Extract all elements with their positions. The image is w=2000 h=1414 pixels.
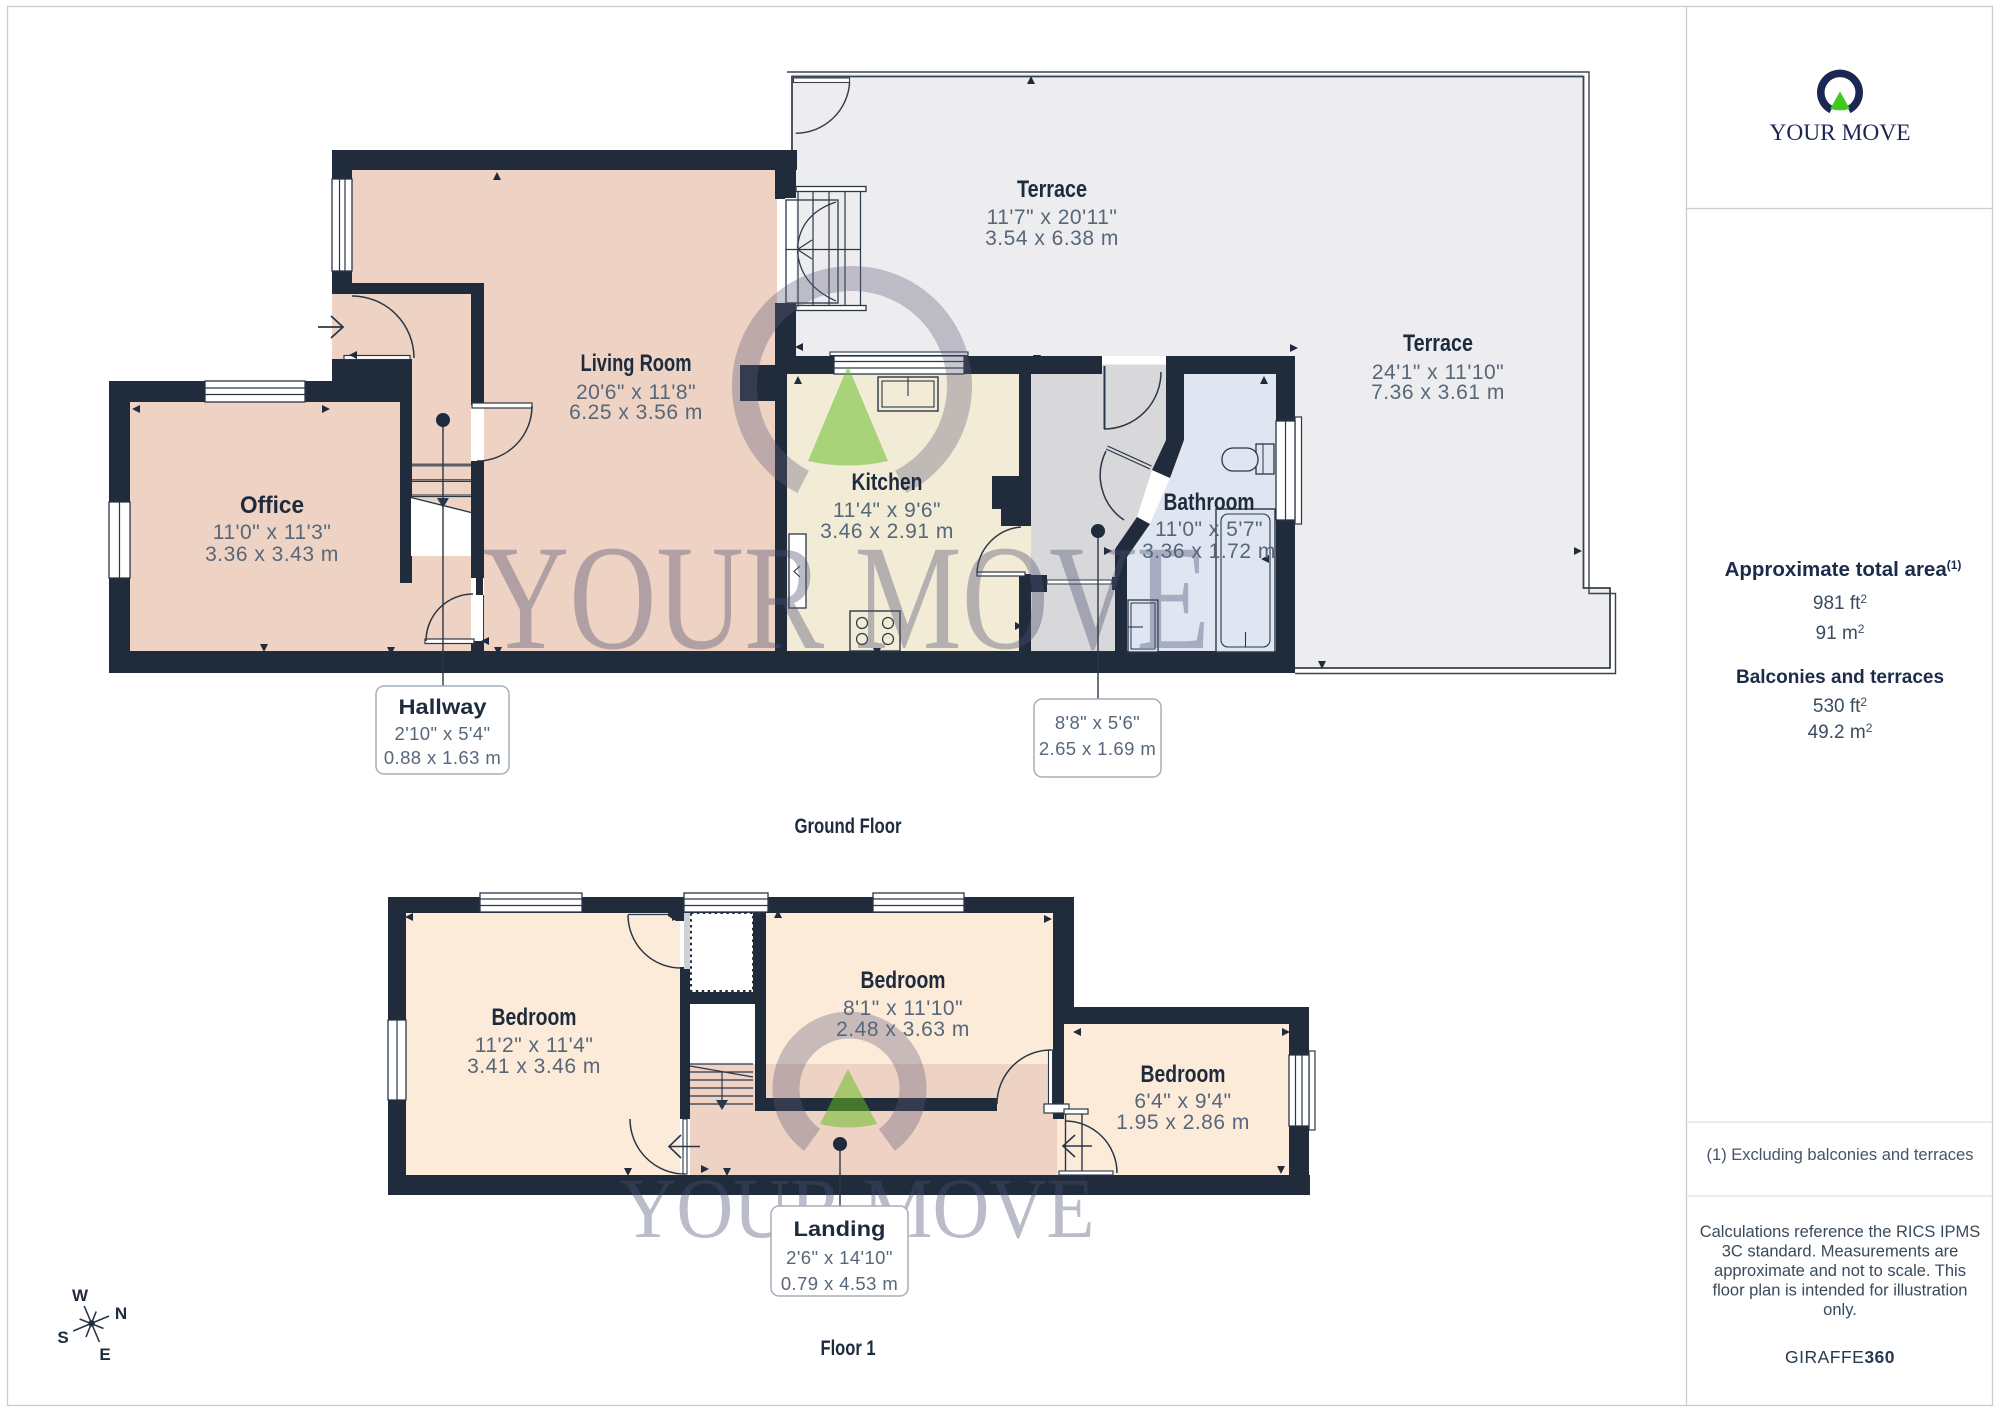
svg-text:49.2 m2: 49.2 m2 (1808, 721, 1873, 743)
svg-text:2.65 x 1.69 m: 2.65 x 1.69 m (1039, 738, 1156, 759)
svg-text:2'6" x 14'10": 2'6" x 14'10" (786, 1247, 893, 1268)
svg-text:1.95 x 2.86 m: 1.95 x 2.86 m (1116, 1111, 1250, 1134)
svg-text:Bathroom: Bathroom (1164, 489, 1255, 516)
svg-text:3.36 x 3.43 m: 3.36 x 3.43 m (205, 543, 339, 566)
svg-text:Bedroom: Bedroom (1141, 1061, 1226, 1088)
svg-text:Floor 1: Floor 1 (821, 1337, 876, 1360)
svg-text:(1) Excluding balconies and te: (1) Excluding balconies and terraces (1707, 1146, 1974, 1164)
svg-text:Landing: Landing (794, 1218, 886, 1241)
svg-text:7.36 x 3.61 m: 7.36 x 3.61 m (1371, 381, 1505, 404)
svg-text:S: S (57, 1328, 68, 1347)
svg-text:11'2" x 11'4": 11'2" x 11'4" (475, 1034, 594, 1057)
svg-text:Calculations reference the RIC: Calculations reference the RICS IPMS (1700, 1223, 1981, 1241)
svg-text:Kitchen: Kitchen (852, 469, 923, 496)
svg-text:0.79 x 4.53 m: 0.79 x 4.53 m (781, 1273, 898, 1294)
svg-text:2.48 x 3.63 m: 2.48 x 3.63 m (836, 1018, 970, 1041)
svg-text:530 ft2: 530 ft2 (1813, 695, 1868, 717)
svg-text:6.25 x 3.56 m: 6.25 x 3.56 m (569, 401, 703, 424)
svg-text:Living Room: Living Room (581, 350, 692, 377)
svg-text:Terrace: Terrace (1403, 330, 1473, 357)
svg-text:Terrace: Terrace (1017, 176, 1087, 203)
svg-text:3C standard. Measurements are: 3C standard. Measurements are (1722, 1243, 1959, 1261)
svg-text:8'8" x 5'6": 8'8" x 5'6" (1055, 712, 1140, 733)
svg-text:3.46 x 2.91 m: 3.46 x 2.91 m (820, 520, 954, 543)
svg-text:8'1" x 11'10": 8'1" x 11'10" (843, 997, 963, 1020)
svg-text:Bedroom: Bedroom (492, 1004, 577, 1031)
svg-text:0.88 x 1.63 m: 0.88 x 1.63 m (384, 747, 501, 768)
svg-text:E: E (99, 1345, 110, 1364)
svg-text:Ground Floor: Ground Floor (795, 815, 902, 838)
svg-text:11'0" x 5'7": 11'0" x 5'7" (1155, 518, 1263, 541)
svg-text:floor plan is intended for ill: floor plan is intended for illustration (1713, 1282, 1968, 1300)
svg-text:2'10" x 5'4": 2'10" x 5'4" (395, 723, 491, 744)
svg-text:Approximate total area(1): Approximate total area(1) (1725, 558, 1962, 581)
svg-text:11'7" x 20'11": 11'7" x 20'11" (987, 206, 1118, 229)
svg-text:Hallway: Hallway (399, 696, 487, 719)
svg-text:3.36 x 1.72 m: 3.36 x 1.72 m (1142, 540, 1276, 563)
svg-text:91 m2: 91 m2 (1816, 622, 1865, 644)
svg-text:approximate and not to scale.: approximate and not to scale. This (1714, 1262, 1966, 1280)
svg-text:3.54 x 6.38 m: 3.54 x 6.38 m (985, 227, 1119, 250)
svg-text:YOUR MOVE: YOUR MOVE (1770, 120, 1911, 145)
svg-text:N: N (115, 1304, 127, 1323)
svg-text:11'0" x 11'3": 11'0" x 11'3" (213, 521, 332, 544)
svg-text:only.: only. (1823, 1301, 1857, 1319)
svg-text:11'4" x 9'6": 11'4" x 9'6" (833, 499, 941, 522)
svg-text:Bedroom: Bedroom (861, 967, 946, 994)
svg-text:981 ft2: 981 ft2 (1813, 592, 1868, 614)
svg-text:6'4" x 9'4": 6'4" x 9'4" (1134, 1090, 1231, 1113)
svg-text:Balconies and terraces: Balconies and terraces (1736, 667, 1944, 688)
svg-text:3.41 x 3.46 m: 3.41 x 3.46 m (467, 1055, 601, 1078)
svg-text:Office: Office (240, 492, 304, 519)
svg-text:W: W (72, 1286, 89, 1305)
svg-text:GIRAFFE360: GIRAFFE360 (1785, 1347, 1895, 1367)
